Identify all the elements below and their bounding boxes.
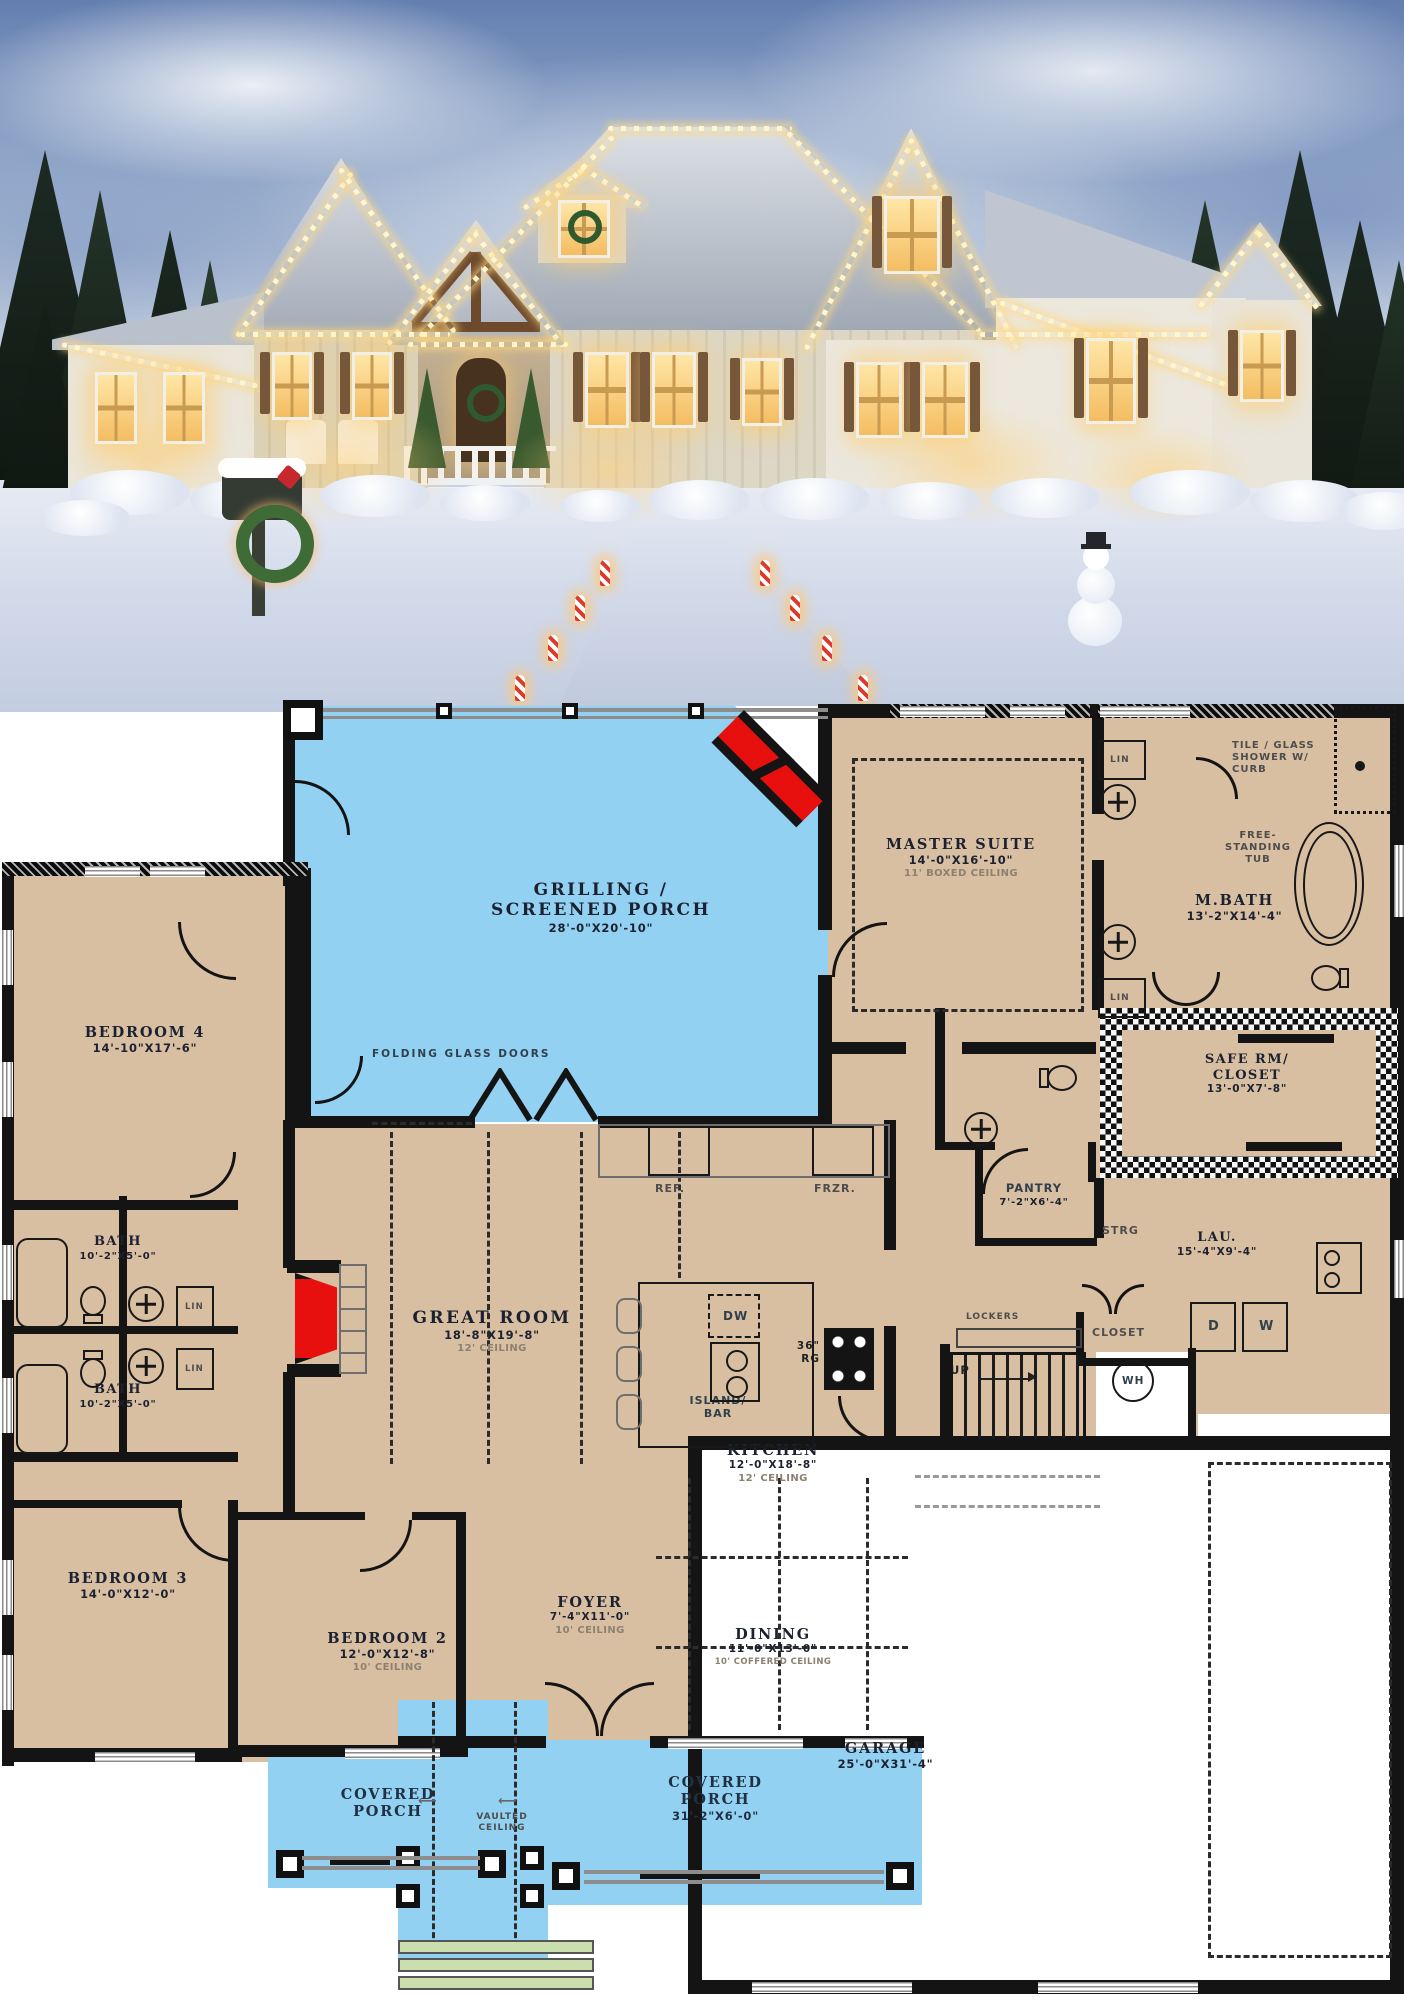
ceiling-beam-dash <box>778 1478 781 1730</box>
wall-segment <box>940 1344 950 1448</box>
bar-stool <box>616 1298 642 1334</box>
entry-steps <box>398 1976 594 1990</box>
ceiling-beam-dash <box>580 1132 583 1464</box>
sink-bowl <box>1324 1272 1340 1288</box>
wall-segment <box>826 1042 906 1054</box>
toilet-icon <box>1037 1063 1077 1093</box>
ceiling-beam-dash <box>432 1702 435 1947</box>
ref-label: REF. <box>655 1182 685 1195</box>
bathtub <box>16 1364 68 1454</box>
porch-railing-dark <box>640 1874 760 1879</box>
wall-segment <box>975 1238 1097 1246</box>
toilet-bowl <box>80 1358 106 1388</box>
garage-storage-dash <box>915 1505 1100 1508</box>
entry-steps <box>398 1940 594 1954</box>
porch-column <box>396 1884 420 1908</box>
great-room-fireplace-top <box>287 1260 341 1273</box>
porch-column <box>478 1850 506 1878</box>
wall-segment <box>119 1196 127 1331</box>
vault-arrow-right: ⟵ <box>498 1794 518 1810</box>
porch-railing <box>302 1866 480 1870</box>
window <box>1394 1240 1404 1298</box>
window <box>2 1062 13 1117</box>
porch-column <box>886 1862 914 1890</box>
screen-post <box>688 703 704 719</box>
sink-icon <box>1100 924 1136 960</box>
porch-railing <box>584 1880 884 1884</box>
sink-bowl <box>726 1376 748 1398</box>
toilet-icon <box>1311 963 1351 993</box>
sink-icon <box>1100 784 1136 820</box>
freezer <box>812 1126 874 1176</box>
window <box>1010 706 1065 717</box>
window <box>900 706 985 717</box>
wall-segment <box>14 1500 182 1508</box>
garage-door-mark <box>1038 1982 1198 1993</box>
safe-room-shelf <box>1238 1034 1334 1043</box>
toilet-bowl <box>80 1286 106 1316</box>
bar-stool <box>616 1346 642 1382</box>
laundry-sink <box>1316 1242 1362 1294</box>
ceiling-beam-dash <box>390 1132 393 1464</box>
shower-note: TILE / GLASS SHOWER W/ CURB <box>1232 740 1336 776</box>
window <box>2 1655 13 1710</box>
closet-label: CLOSET <box>1092 1326 1145 1339</box>
ceiling-beam-dash <box>487 1132 490 1464</box>
porch-column <box>520 1884 544 1908</box>
porch-column <box>520 1846 544 1870</box>
wall-segment <box>283 1372 295 1512</box>
room-label-covered-porch-left: COVERED PORCH <box>308 1786 468 1821</box>
porch-column <box>276 1850 304 1878</box>
vaulted-ceiling-note: VAULTED CEILING <box>466 1812 538 1834</box>
sink-line <box>1108 941 1128 944</box>
window <box>2 1378 13 1433</box>
frzr-label: FRZR. <box>814 1182 856 1195</box>
room-label-garage: GARAGE 25'-0"X31'-4" <box>798 1740 973 1772</box>
great-room-fireplace-bottom <box>287 1364 341 1377</box>
ceiling-beam-dash <box>866 1478 869 1730</box>
sink-icon <box>128 1286 164 1322</box>
room-name: SCREENED PORCH <box>436 900 766 920</box>
tub-inner <box>1303 831 1357 939</box>
garage-bay-dash <box>1208 1462 1392 1958</box>
window <box>1394 845 1404 917</box>
fireplace-hearth <box>339 1264 367 1374</box>
wall-segment <box>935 1008 945 1148</box>
room-label-bed2: BEDROOM 2 12'-0"X12'-8" 10' CEILING <box>300 1630 475 1675</box>
toilet-icon <box>78 1286 108 1326</box>
freestanding-tub <box>1294 822 1364 946</box>
window <box>2 930 13 985</box>
sink-line <box>971 1128 990 1131</box>
fireplace-divider <box>744 753 794 782</box>
room-label-laundry: LAU. 15'-4"X9'-4" <box>1152 1230 1282 1259</box>
room-name: GRILLING / <box>436 880 766 900</box>
porch-column <box>283 700 323 740</box>
window <box>150 866 205 877</box>
wall-segment <box>285 868 311 1128</box>
dryer: D <box>1190 1302 1236 1352</box>
folding-glass-doors-icon <box>468 1068 604 1122</box>
porch-railing-dark <box>330 1860 390 1865</box>
floor-plan: GRILLING / SCREENED PORCH 28'-0"X20'-10"… <box>0 0 1404 2000</box>
wall-segment <box>962 1042 1096 1054</box>
garage-storage-dash <box>915 1475 1100 1478</box>
garage-door-mark <box>752 1982 912 1993</box>
room-label-foyer: FOYER 7'-4"X11'-0" 10' CEILING <box>520 1594 660 1638</box>
ceiling-beam-dash <box>688 1478 691 1730</box>
window <box>1100 706 1190 717</box>
window <box>345 1748 440 1759</box>
shower-drain <box>1355 761 1365 771</box>
toilet-bowl <box>1311 965 1341 991</box>
toilet-icon <box>78 1348 108 1388</box>
window <box>95 1752 195 1763</box>
room-label-dining: DINING 11'-0"X13'-0" 10' COFFERED CEILIN… <box>698 1626 848 1668</box>
room-label-master-suite: MASTER SUITE 14'-0"X16'-10" 11' BOXED CE… <box>826 836 1096 881</box>
toilet-bowl <box>1047 1065 1077 1091</box>
window <box>2 1245 13 1300</box>
sink-bowl <box>1324 1250 1340 1266</box>
wall-segment <box>884 1326 896 1440</box>
sink-line <box>136 1303 156 1306</box>
room-label-screened-porch: GRILLING / SCREENED PORCH 28'-0"X20'-10" <box>436 880 766 936</box>
room-label-bath-upper: BATH 10'-2"X5'-0" <box>58 1234 178 1263</box>
washer: W <box>1242 1302 1288 1352</box>
lockers-bench <box>956 1328 1082 1348</box>
page: GRILLING / SCREENED PORCH 28'-0"X20'-10"… <box>0 0 1404 2000</box>
room-label-bed3: BEDROOM 3 14'-0"X12'-0" <box>38 1570 218 1602</box>
refrigerator <box>648 1126 710 1176</box>
vault-arrow-left: ⟵ <box>418 1794 438 1810</box>
linen-closet: LIN <box>176 1286 214 1328</box>
window <box>718 1738 803 1749</box>
shower <box>1334 706 1396 814</box>
linen-closet: LIN <box>1098 978 1146 1018</box>
toilet-tank <box>1039 1068 1049 1088</box>
room-dims: 28'-0"X20'-10" <box>436 921 766 936</box>
entry-steps <box>398 1958 594 1972</box>
tub-note: FREE- STANDING TUB <box>1218 830 1298 866</box>
folding-doors-label: FOLDING GLASS DOORS <box>372 1048 592 1061</box>
room-label-safe-room: SAFE RM/ CLOSET 13'-0"X7'-8" <box>1152 1052 1342 1097</box>
wall-segment <box>283 1120 295 1268</box>
window <box>85 866 140 877</box>
porch-railing <box>302 1856 480 1860</box>
wall-segment <box>2 862 14 1766</box>
wall-segment <box>235 1512 365 1520</box>
toilet-tank <box>83 1314 103 1324</box>
toilet-tank <box>1339 968 1349 988</box>
dormer-wreath <box>568 210 602 244</box>
ceiling-beam-dash <box>372 1122 472 1125</box>
room-label-great-room: GREAT ROOM 18'-8"X19'-8" 12' CEILING <box>392 1308 592 1356</box>
room-label-mbath: M.BATH 13'-2"X14'-4" <box>1152 892 1317 924</box>
ceiling-beam-dash <box>656 1556 908 1559</box>
porch-column <box>552 1862 580 1890</box>
screen-post <box>562 703 578 719</box>
island-sink <box>710 1342 760 1402</box>
safe-room-shelf <box>1246 1142 1342 1151</box>
room-label-pantry: PANTRY 7'-2"X6'-4" <box>978 1182 1090 1209</box>
lockers-label: LOCKERS <box>966 1312 1019 1323</box>
bar-stool <box>616 1394 642 1430</box>
window <box>2 1560 13 1615</box>
room-label-bed4: BEDROOM 4 14'-10"X17'-6" <box>55 1024 235 1056</box>
linen-closet: LIN <box>1098 740 1146 780</box>
sink-line <box>136 1365 156 1368</box>
water-heater: WH <box>1112 1360 1154 1402</box>
sink-icon <box>964 1112 998 1146</box>
toilet-tank <box>83 1350 103 1360</box>
sink-line <box>1108 801 1128 804</box>
linen-closet: LIN <box>176 1348 214 1390</box>
strg-label: STRG <box>1102 1224 1139 1237</box>
wall-segment <box>1088 1142 1096 1182</box>
room-label-kitchen: KITCHEN 12'-0"X18'-8" 12' CEILING <box>698 1442 848 1486</box>
wall-segment <box>398 1736 546 1748</box>
screen-post <box>436 703 452 719</box>
range <box>824 1328 874 1390</box>
great-room-firebox <box>295 1273 337 1364</box>
room-label-bath-lower: BATH 10'-2"X5'-0" <box>58 1382 178 1411</box>
sink-icon <box>128 1348 164 1384</box>
bathtub <box>16 1238 68 1328</box>
room-label-covered-porch-right: COVERED PORCH 31'-2"X6'-0" <box>608 1774 823 1824</box>
stairs <box>950 1352 1086 1442</box>
sink-bowl <box>726 1350 748 1372</box>
